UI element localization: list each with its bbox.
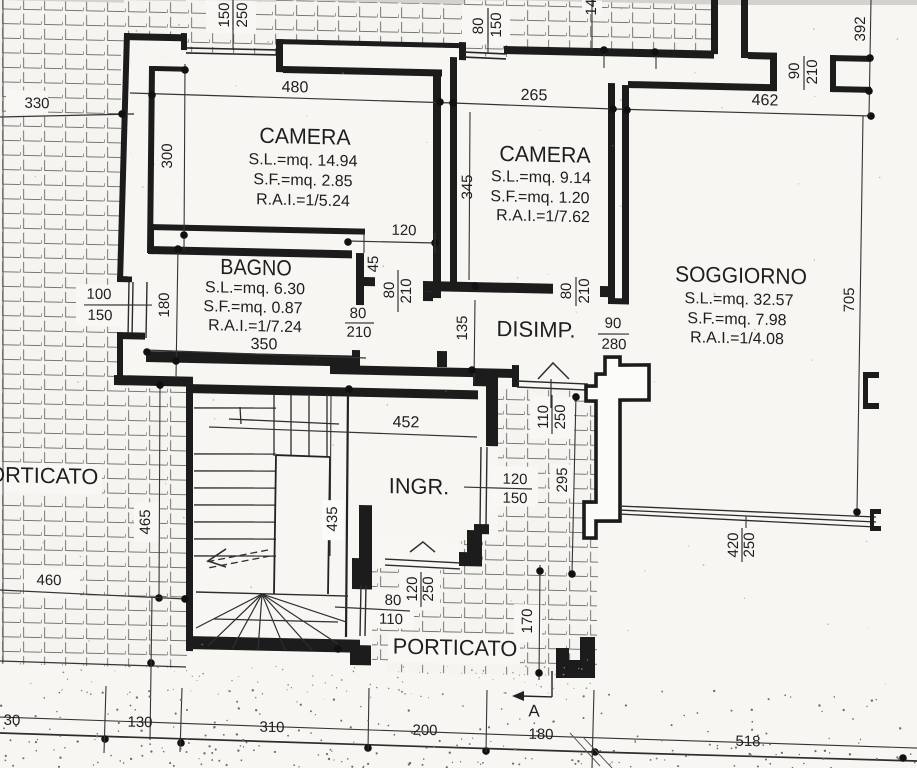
svg-text:S.F.=mq. 0.87: S.F.=mq. 0.87 bbox=[203, 298, 302, 317]
svg-text:210: 210 bbox=[398, 278, 415, 303]
svg-text:280: 280 bbox=[601, 336, 626, 354]
svg-text:420: 420 bbox=[725, 532, 742, 557]
svg-text:150: 150 bbox=[502, 490, 527, 508]
svg-text:R.A.I.=1/5.24: R.A.I.=1/5.24 bbox=[256, 191, 350, 210]
svg-text:480: 480 bbox=[282, 79, 309, 97]
svg-text:100: 100 bbox=[86, 286, 111, 304]
svg-text:130: 130 bbox=[127, 714, 152, 732]
svg-text:392: 392 bbox=[852, 16, 869, 41]
svg-text:135: 135 bbox=[454, 315, 471, 340]
svg-text:345: 345 bbox=[459, 174, 476, 199]
svg-text:80: 80 bbox=[558, 282, 575, 299]
svg-text:705: 705 bbox=[841, 287, 858, 312]
svg-text:80: 80 bbox=[385, 592, 402, 609]
svg-text:R.A.I.=1/7.62: R.A.I.=1/7.62 bbox=[496, 207, 590, 226]
svg-text:250: 250 bbox=[420, 576, 437, 601]
svg-text:DISIMP.: DISIMP. bbox=[496, 316, 575, 343]
svg-text:80: 80 bbox=[350, 305, 367, 322]
svg-text:120: 120 bbox=[502, 471, 527, 489]
svg-text:250: 250 bbox=[234, 2, 251, 27]
svg-text:460: 460 bbox=[36, 572, 61, 590]
svg-text:462: 462 bbox=[752, 92, 779, 110]
svg-text:BAGNO: BAGNO bbox=[220, 255, 291, 281]
svg-text:S.F.=mq. 2.85: S.F.=mq. 2.85 bbox=[253, 171, 352, 190]
svg-text:150: 150 bbox=[87, 307, 112, 325]
svg-text:150: 150 bbox=[216, 2, 233, 27]
svg-text:S.L.=mq. 6.30: S.L.=mq. 6.30 bbox=[205, 279, 305, 298]
svg-text:330: 330 bbox=[24, 95, 49, 113]
svg-text:210: 210 bbox=[576, 278, 593, 303]
svg-text:120: 120 bbox=[391, 222, 416, 240]
svg-text:90: 90 bbox=[605, 315, 622, 332]
svg-text:S.L.=mq. 14.94: S.L.=mq. 14.94 bbox=[249, 151, 358, 170]
svg-text:CAMERA: CAMERA bbox=[499, 141, 591, 168]
svg-text:265: 265 bbox=[521, 87, 548, 105]
svg-text:295: 295 bbox=[554, 467, 571, 492]
svg-text:120: 120 bbox=[404, 576, 421, 601]
svg-text:210: 210 bbox=[804, 59, 821, 84]
svg-text:PORTICATO: PORTICATO bbox=[0, 461, 98, 489]
svg-text:140: 140 bbox=[583, 0, 600, 16]
svg-text:INGR.: INGR. bbox=[389, 473, 449, 499]
svg-text:180: 180 bbox=[156, 292, 173, 317]
svg-text:310: 310 bbox=[259, 719, 284, 737]
svg-text:518: 518 bbox=[735, 733, 760, 751]
svg-text:170: 170 bbox=[519, 608, 536, 633]
svg-text:435: 435 bbox=[324, 506, 341, 531]
svg-text:80: 80 bbox=[381, 281, 398, 298]
svg-text:S.F.=mq. 7.98: S.F.=mq. 7.98 bbox=[687, 310, 786, 329]
svg-text:45: 45 bbox=[365, 255, 382, 272]
svg-text:S.L.=mq. 32.57: S.L.=mq. 32.57 bbox=[685, 290, 794, 309]
svg-text:200: 200 bbox=[412, 722, 437, 740]
svg-text:R.A.I.=1/4.08: R.A.I.=1/4.08 bbox=[690, 329, 784, 348]
svg-text:80: 80 bbox=[470, 17, 487, 34]
svg-text:S.L.=mq. 9.14: S.L.=mq. 9.14 bbox=[491, 168, 591, 187]
svg-text:30: 30 bbox=[4, 712, 21, 729]
svg-text:150: 150 bbox=[488, 12, 505, 37]
svg-text:250: 250 bbox=[741, 532, 758, 557]
svg-text:PORTICATO: PORTICATO bbox=[393, 633, 518, 661]
svg-text:210: 210 bbox=[346, 324, 371, 342]
svg-text:S.F.=mq. 1.20: S.F.=mq. 1.20 bbox=[490, 188, 589, 207]
svg-text:90: 90 bbox=[786, 62, 803, 79]
svg-text:A: A bbox=[528, 701, 540, 720]
svg-text:110: 110 bbox=[535, 405, 552, 429]
svg-text:CAMERA: CAMERA bbox=[259, 122, 351, 149]
svg-text:180: 180 bbox=[528, 726, 553, 744]
svg-text:350: 350 bbox=[251, 336, 278, 354]
svg-text:465: 465 bbox=[137, 509, 154, 534]
svg-text:300: 300 bbox=[159, 143, 176, 168]
svg-text:SOGGIORNO: SOGGIORNO bbox=[675, 262, 807, 289]
svg-text:452: 452 bbox=[393, 414, 420, 432]
svg-text:R.A.I.=1/7.24: R.A.I.=1/7.24 bbox=[208, 317, 302, 336]
svg-text:250: 250 bbox=[552, 404, 569, 429]
svg-text:110: 110 bbox=[379, 611, 403, 629]
